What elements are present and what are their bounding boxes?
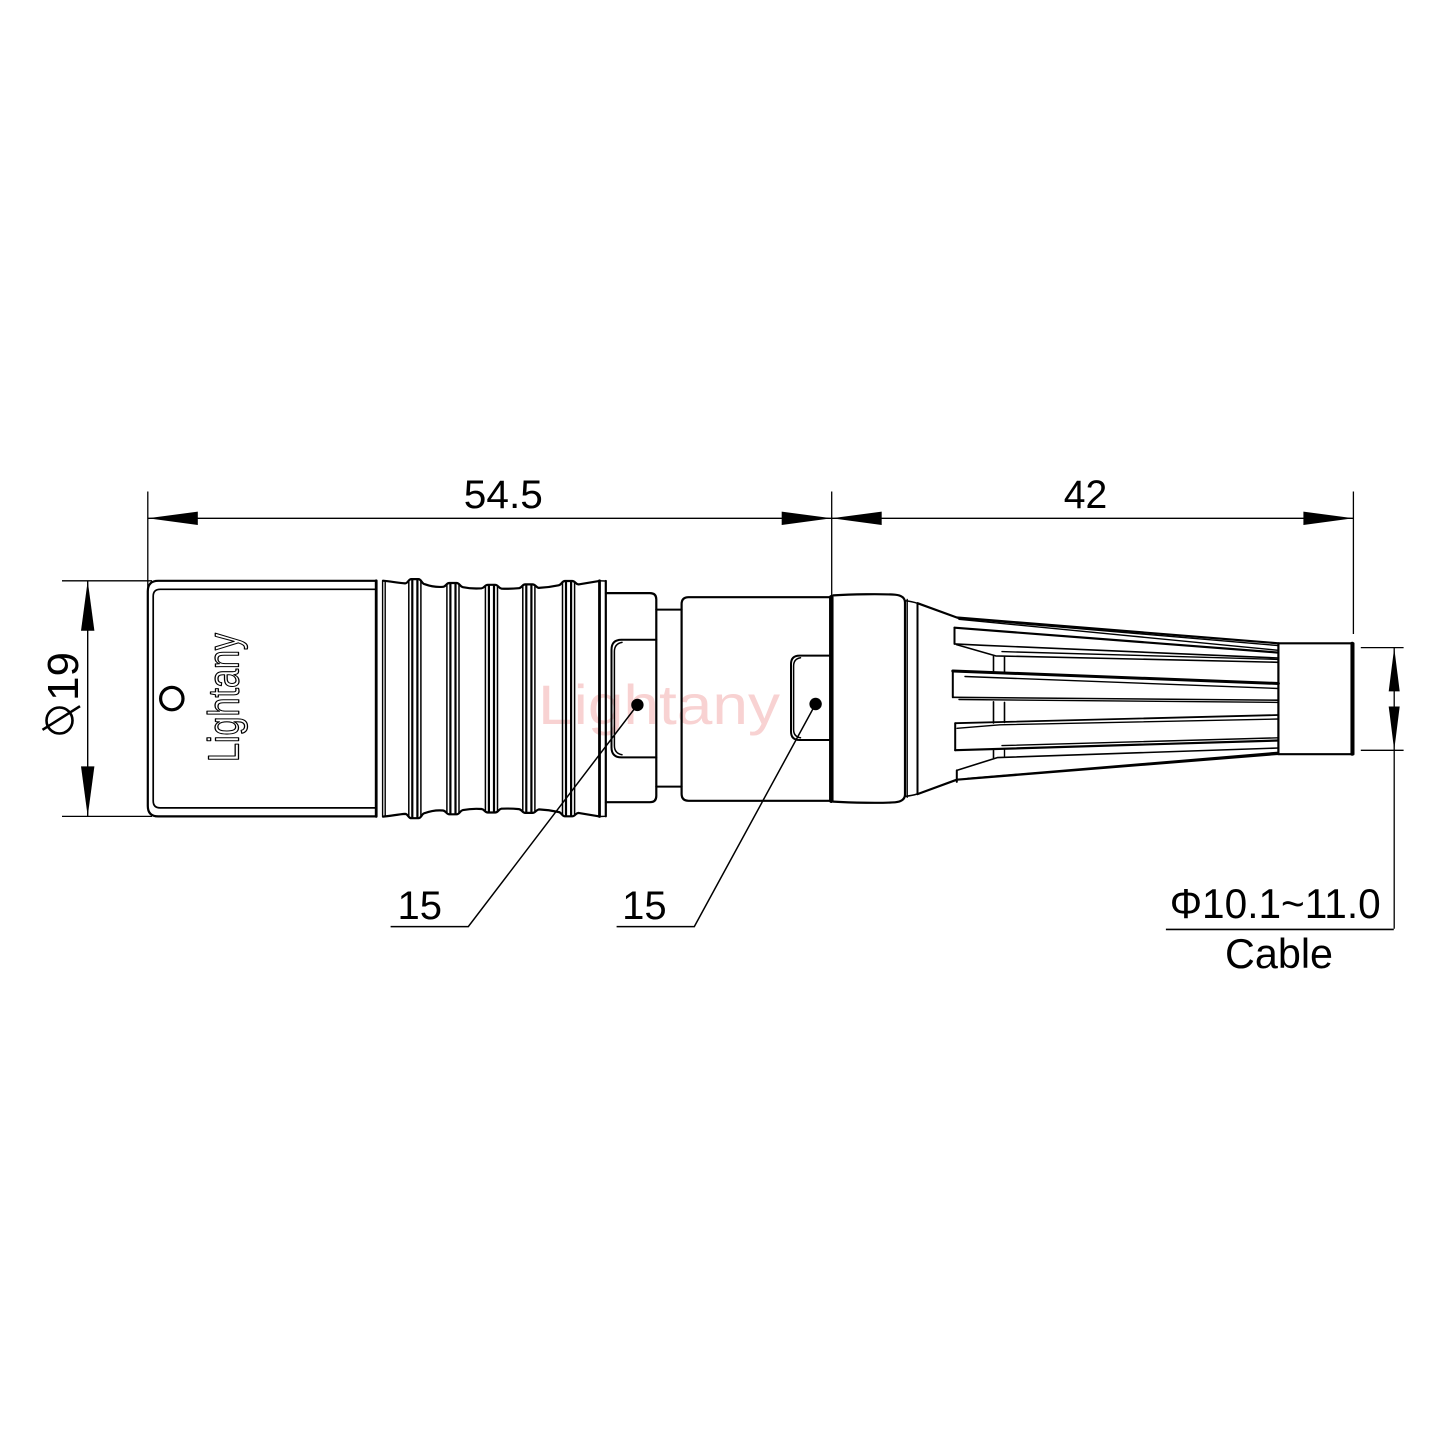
svg-text:15: 15 [622, 884, 667, 928]
svg-text:Cable: Cable [1225, 930, 1333, 977]
svg-text:Φ10.1~11.0: Φ10.1~11.0 [1170, 880, 1381, 927]
svg-text:15: 15 [398, 884, 443, 928]
svg-text:19: 19 [39, 652, 88, 701]
svg-text:42: 42 [1064, 473, 1108, 517]
svg-text:54.5: 54.5 [464, 473, 543, 517]
svg-text:Lightany: Lightany [201, 633, 249, 762]
